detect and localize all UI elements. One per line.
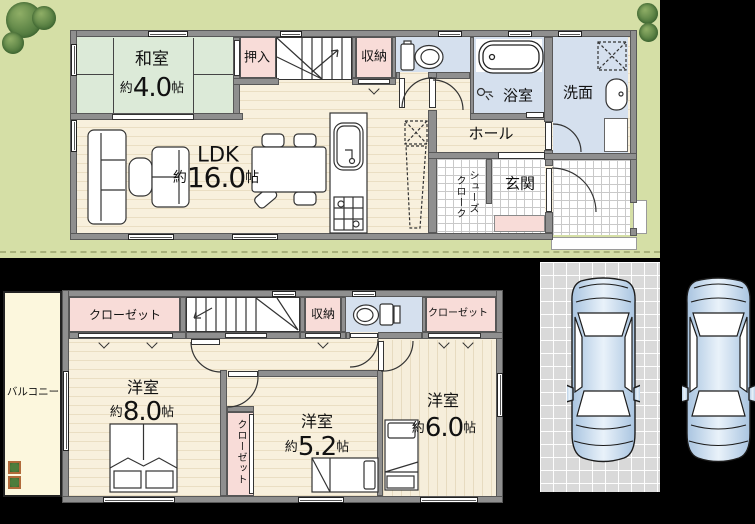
tatami-line xyxy=(113,38,114,120)
floor-plan-canvas: 和室 約4.0帖 押入 収納 LDK 約16.0帖 浴室 洗面 ホール 玄関 シ… xyxy=(0,0,755,524)
closet-b-label: クローゼット xyxy=(428,309,488,319)
room6-size: 約6.0帖 xyxy=(412,415,476,441)
washitsu-label: 和室 xyxy=(135,52,169,69)
hall-door-leaf xyxy=(429,78,436,108)
car-top-view xyxy=(567,275,640,465)
wall xyxy=(428,110,437,233)
room52-size-unit: 帖 xyxy=(336,441,349,454)
closet-a-door xyxy=(78,333,173,338)
wall xyxy=(220,370,227,496)
wall xyxy=(377,370,383,496)
room52-size: 約5.2帖 xyxy=(285,434,349,460)
window xyxy=(71,120,77,152)
room8-size-num: 8.0 xyxy=(123,399,161,425)
window xyxy=(352,291,376,297)
washroom-door-leaf xyxy=(545,122,552,150)
stairs-2f xyxy=(186,297,300,332)
window xyxy=(232,234,278,240)
wall xyxy=(233,78,279,85)
wall xyxy=(300,297,305,332)
window xyxy=(272,291,296,297)
bath-folding-door xyxy=(526,112,544,118)
washitsu-size-approx: 約 xyxy=(120,82,133,95)
wall xyxy=(378,332,422,339)
front-door-leaf xyxy=(546,168,552,212)
wall xyxy=(544,37,553,122)
closet-c-door xyxy=(249,414,254,494)
potted-plant-icon xyxy=(8,461,21,474)
wall xyxy=(227,406,254,412)
room6-door-leaf xyxy=(378,341,384,371)
entrance-porch xyxy=(553,160,630,235)
window xyxy=(128,234,174,240)
wall xyxy=(545,159,553,166)
car-top-view xyxy=(682,275,755,465)
room8-size-approx: 約 xyxy=(110,406,123,419)
tatami-line xyxy=(193,38,194,120)
stairs-landing-opening xyxy=(225,333,267,338)
room6-label: 洋室 xyxy=(427,393,459,409)
toilet-door-leaf-1f xyxy=(399,78,405,108)
room8-door-leaf xyxy=(191,339,220,345)
wall xyxy=(630,228,637,236)
room52-size-approx: 約 xyxy=(285,441,298,454)
tatami-line xyxy=(77,74,113,75)
room-toilet-2f xyxy=(346,297,422,332)
genkan-step xyxy=(494,215,545,232)
closet-a-label: クローゼット xyxy=(89,309,161,321)
hall-label: ホール xyxy=(468,127,513,142)
ldk-size-unit: 帖 xyxy=(245,171,259,185)
room52-label: 洋室 xyxy=(301,414,333,430)
ldk-size-approx: 約 xyxy=(173,171,187,185)
window xyxy=(420,497,478,503)
washroom-cabinet xyxy=(604,118,628,152)
window xyxy=(508,31,532,37)
oshiire-label: 押入 xyxy=(244,52,270,65)
room8-size: 約8.0帖 xyxy=(110,399,174,425)
bathtub-area xyxy=(476,39,542,72)
wall xyxy=(630,159,637,203)
oshiire-door xyxy=(234,40,240,76)
wall xyxy=(630,30,637,163)
room8-label: 洋室 xyxy=(127,380,159,396)
ldk-size: 約16.0帖 xyxy=(173,164,259,192)
tree-icon xyxy=(639,23,658,42)
window xyxy=(103,497,175,503)
porch-front-step xyxy=(551,237,637,250)
balcony-sliding-door xyxy=(63,371,69,451)
bath-label: 浴室 xyxy=(503,89,533,104)
tatami-line xyxy=(194,74,236,75)
room-toilet-1f xyxy=(396,37,470,72)
wall xyxy=(258,370,383,377)
wall xyxy=(352,37,356,78)
room52-door-leaf xyxy=(228,371,258,377)
window xyxy=(558,31,582,37)
wall xyxy=(544,153,637,160)
ldk-size-num: 16.0 xyxy=(187,164,245,192)
window xyxy=(298,497,344,503)
storage-1f-label: 収納 xyxy=(361,51,387,64)
window xyxy=(280,31,302,37)
washitsu-size: 約4.0帖 xyxy=(120,75,184,101)
wall xyxy=(545,212,553,233)
washitsu-size-unit: 帖 xyxy=(171,82,184,95)
wall xyxy=(180,297,186,332)
balcony-label: バルコニー xyxy=(7,387,59,398)
genkan-label: 玄関 xyxy=(505,177,535,192)
washroom-label: 洗面 xyxy=(563,86,593,101)
potted-plant-icon xyxy=(8,476,21,489)
room6-size-num: 6.0 xyxy=(425,415,463,441)
toilet-door-leaf-2f xyxy=(350,333,378,338)
genkan-hall-opening xyxy=(498,152,545,159)
lot-boundary-dashed-line xyxy=(0,251,660,253)
tree-icon xyxy=(32,6,56,30)
tree-icon xyxy=(637,3,658,24)
storage-2f-label: 収納 xyxy=(311,308,335,320)
stairs-1f xyxy=(276,37,352,80)
room52-size-num: 5.2 xyxy=(298,434,336,460)
room6-size-approx: 約 xyxy=(412,422,425,435)
room6-size-unit: 帖 xyxy=(463,422,476,435)
wall xyxy=(341,297,346,332)
window xyxy=(148,31,188,37)
closet-c-label: クローゼット xyxy=(235,419,245,485)
wall xyxy=(422,297,426,332)
window xyxy=(438,31,462,37)
shoes-cloak-label-right: シューズ xyxy=(467,170,477,214)
wall xyxy=(486,159,492,204)
wall xyxy=(470,37,474,116)
washitsu-sliding-door xyxy=(112,114,194,120)
window xyxy=(497,373,503,417)
shoes-cloak-label-left: クローク xyxy=(454,175,464,219)
window xyxy=(71,44,77,76)
closet-b-door xyxy=(428,333,481,338)
tree-icon xyxy=(2,32,24,54)
washitsu-size-num: 4.0 xyxy=(133,75,171,101)
room8-size-unit: 帖 xyxy=(161,406,174,419)
